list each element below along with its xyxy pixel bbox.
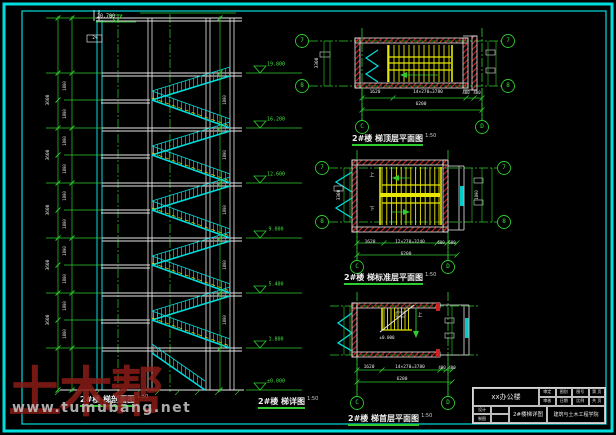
info-cell: 审定 — [539, 388, 556, 397]
dim-label: 3300 — [338, 190, 343, 201]
info-cell: 图别 — [556, 388, 573, 397]
grid-bubble-label: 8 — [502, 219, 506, 225]
dim-label: 3600 — [47, 260, 52, 271]
dim-label: 1620 — [365, 241, 376, 246]
elevation-label: 1.800 — [268, 338, 283, 343]
dim-label: 1800 — [63, 136, 67, 146]
elevation-label: ±0.000 — [267, 380, 285, 385]
grid-bubble-label: 7 — [300, 38, 304, 44]
dim-label: 600 — [448, 241, 455, 245]
section-dim-chain — [46, 16, 102, 393]
stair-direction-label: 上 — [417, 314, 422, 319]
caption-scale: 1:50 — [425, 272, 436, 278]
elevation-label: 9.000 — [268, 228, 283, 233]
caption-scale: 1:50 — [421, 413, 432, 419]
elevation-label: 20.700 — [97, 15, 115, 20]
sign-cell: 设计 — [473, 406, 491, 415]
title-block-sign-grid: 设计 制图 — [473, 406, 509, 424]
standard-plan — [316, 150, 511, 274]
dim-label: 1800 — [223, 95, 227, 105]
caption-text: 2#楼 梯详图 — [258, 397, 305, 409]
info-cell: 日期 — [556, 397, 573, 406]
dim-label: 1800 — [63, 164, 67, 174]
stair-treads — [388, 45, 452, 82]
dim-label: 400 — [448, 366, 455, 370]
caption-detail: 2#楼 梯详图1:50 — [258, 396, 318, 407]
dim-label: 3600 — [47, 95, 52, 106]
grid-bubble-label: C — [360, 124, 364, 130]
caption-scale: 1:50 — [307, 396, 318, 402]
elevation-label: 12.600 — [267, 173, 285, 178]
watermark-url: www.tumubang.net — [12, 400, 191, 416]
elevation-label: ±0.000 — [379, 336, 394, 340]
grid-bubble-label: C — [355, 264, 359, 270]
dim-label: 1800 — [223, 260, 227, 270]
info-cell: 第 页 — [589, 388, 606, 397]
dim-label: 1800 — [63, 109, 67, 119]
dim-label: 1800 — [63, 191, 67, 201]
elevation-label: 5.400 — [268, 283, 283, 288]
title-block-info-grid: 审定 图别 图号 第 页 审核 日期 比例 共 页 — [539, 388, 605, 406]
grid-bubble-label: C — [355, 400, 359, 406]
grid-bubble-label: D — [446, 264, 450, 270]
dim-label: 1800 — [63, 274, 67, 284]
caption-top-plan: 2#楼 梯顶层平面图1:50 — [352, 133, 436, 144]
dim-label: 1800 — [223, 315, 227, 325]
dim-label: 1620 — [364, 366, 375, 371]
dim-label: 1800 — [475, 190, 479, 200]
grid-bubble-label: 8 — [300, 83, 304, 89]
dim-label: 1800 — [63, 329, 67, 339]
grid-bubble-label: D — [480, 124, 484, 130]
stair-treads — [380, 167, 441, 225]
dim-label: 1800 — [223, 205, 227, 215]
caption-first-plan: 2#楼 梯首层平面图1:50 — [348, 413, 432, 424]
dim-label: 600 — [437, 241, 444, 245]
grid-bubble-label: 7 — [506, 38, 510, 44]
elevation-label: 19.800 — [267, 63, 285, 68]
dim-label: 14×270=3780 — [395, 366, 425, 371]
dim-label: 1800 — [63, 81, 67, 91]
caption-standard-plan: 2#楼 梯标准层平面图1:50 — [344, 272, 436, 283]
elevation-label: 16.200 — [267, 118, 285, 123]
first-floor-plan — [330, 292, 478, 410]
dim-label: 6200 — [401, 253, 412, 258]
info-cell: 共 页 — [589, 397, 606, 406]
dim-label: 3600 — [47, 150, 52, 161]
grid-bubble-label: 8 — [506, 83, 510, 89]
stair-direction-label: 上 — [369, 174, 374, 179]
dim-label: 3600 — [47, 205, 52, 216]
project-name: xx办公楼 — [473, 388, 539, 406]
dim-label: 12×270=3240 — [395, 241, 425, 246]
grid-bubble-label: 8 — [320, 219, 324, 225]
slope-label: 2% — [92, 37, 97, 42]
cad-sheet: 2#楼 梯剖面图1:50 2#楼 梯详图1:50 2#楼 梯顶层平面图1:50 … — [0, 0, 616, 435]
dim-label: 14×270=3780 — [413, 91, 443, 96]
dim-label: 1800 — [63, 246, 67, 256]
dim-label: 400 — [473, 91, 480, 95]
sign-cell — [491, 406, 509, 415]
stair-flights — [152, 67, 230, 390]
institution-name: 建筑与土木工程学院 — [547, 406, 605, 424]
caption-text: 2#楼 梯标准层平面图 — [344, 273, 423, 285]
info-cell: 比例 — [572, 397, 589, 406]
drawing-title: 2#楼梯详图 — [509, 406, 547, 424]
title-block: xx办公楼 审定 图别 图号 第 页 审核 日期 比例 共 页 设计 制图 2#… — [472, 387, 606, 424]
dim-label: 1800 — [63, 301, 67, 311]
grid-bubble-label: D — [446, 400, 450, 406]
grid-bubble-label: 7 — [502, 165, 506, 171]
sign-cell — [491, 414, 509, 423]
dim-label: 3600 — [47, 315, 52, 326]
dim-label: 1800 — [63, 219, 67, 229]
caption-scale: 1:50 — [425, 133, 436, 139]
dim-label: 6200 — [416, 103, 427, 108]
sign-cell: 制图 — [473, 414, 491, 423]
info-cell: 审核 — [539, 397, 556, 406]
dim-label: 400 — [438, 366, 445, 370]
dim-label: 400 — [462, 91, 469, 95]
stair-direction-label: 下 — [369, 208, 374, 213]
section-drawing — [46, 10, 302, 395]
dim-label: 6200 — [397, 378, 408, 383]
top-plan — [296, 28, 515, 134]
info-cell: 图号 — [572, 388, 589, 397]
grid-bubble-label: 7 — [320, 165, 324, 171]
dim-label: 1800 — [223, 150, 227, 160]
caption-text: 2#楼 梯顶层平面图 — [352, 134, 423, 146]
caption-text: 2#楼 梯首层平面图 — [348, 414, 419, 426]
dim-label: 3300 — [316, 58, 321, 69]
dim-label: 1620 — [370, 91, 381, 96]
